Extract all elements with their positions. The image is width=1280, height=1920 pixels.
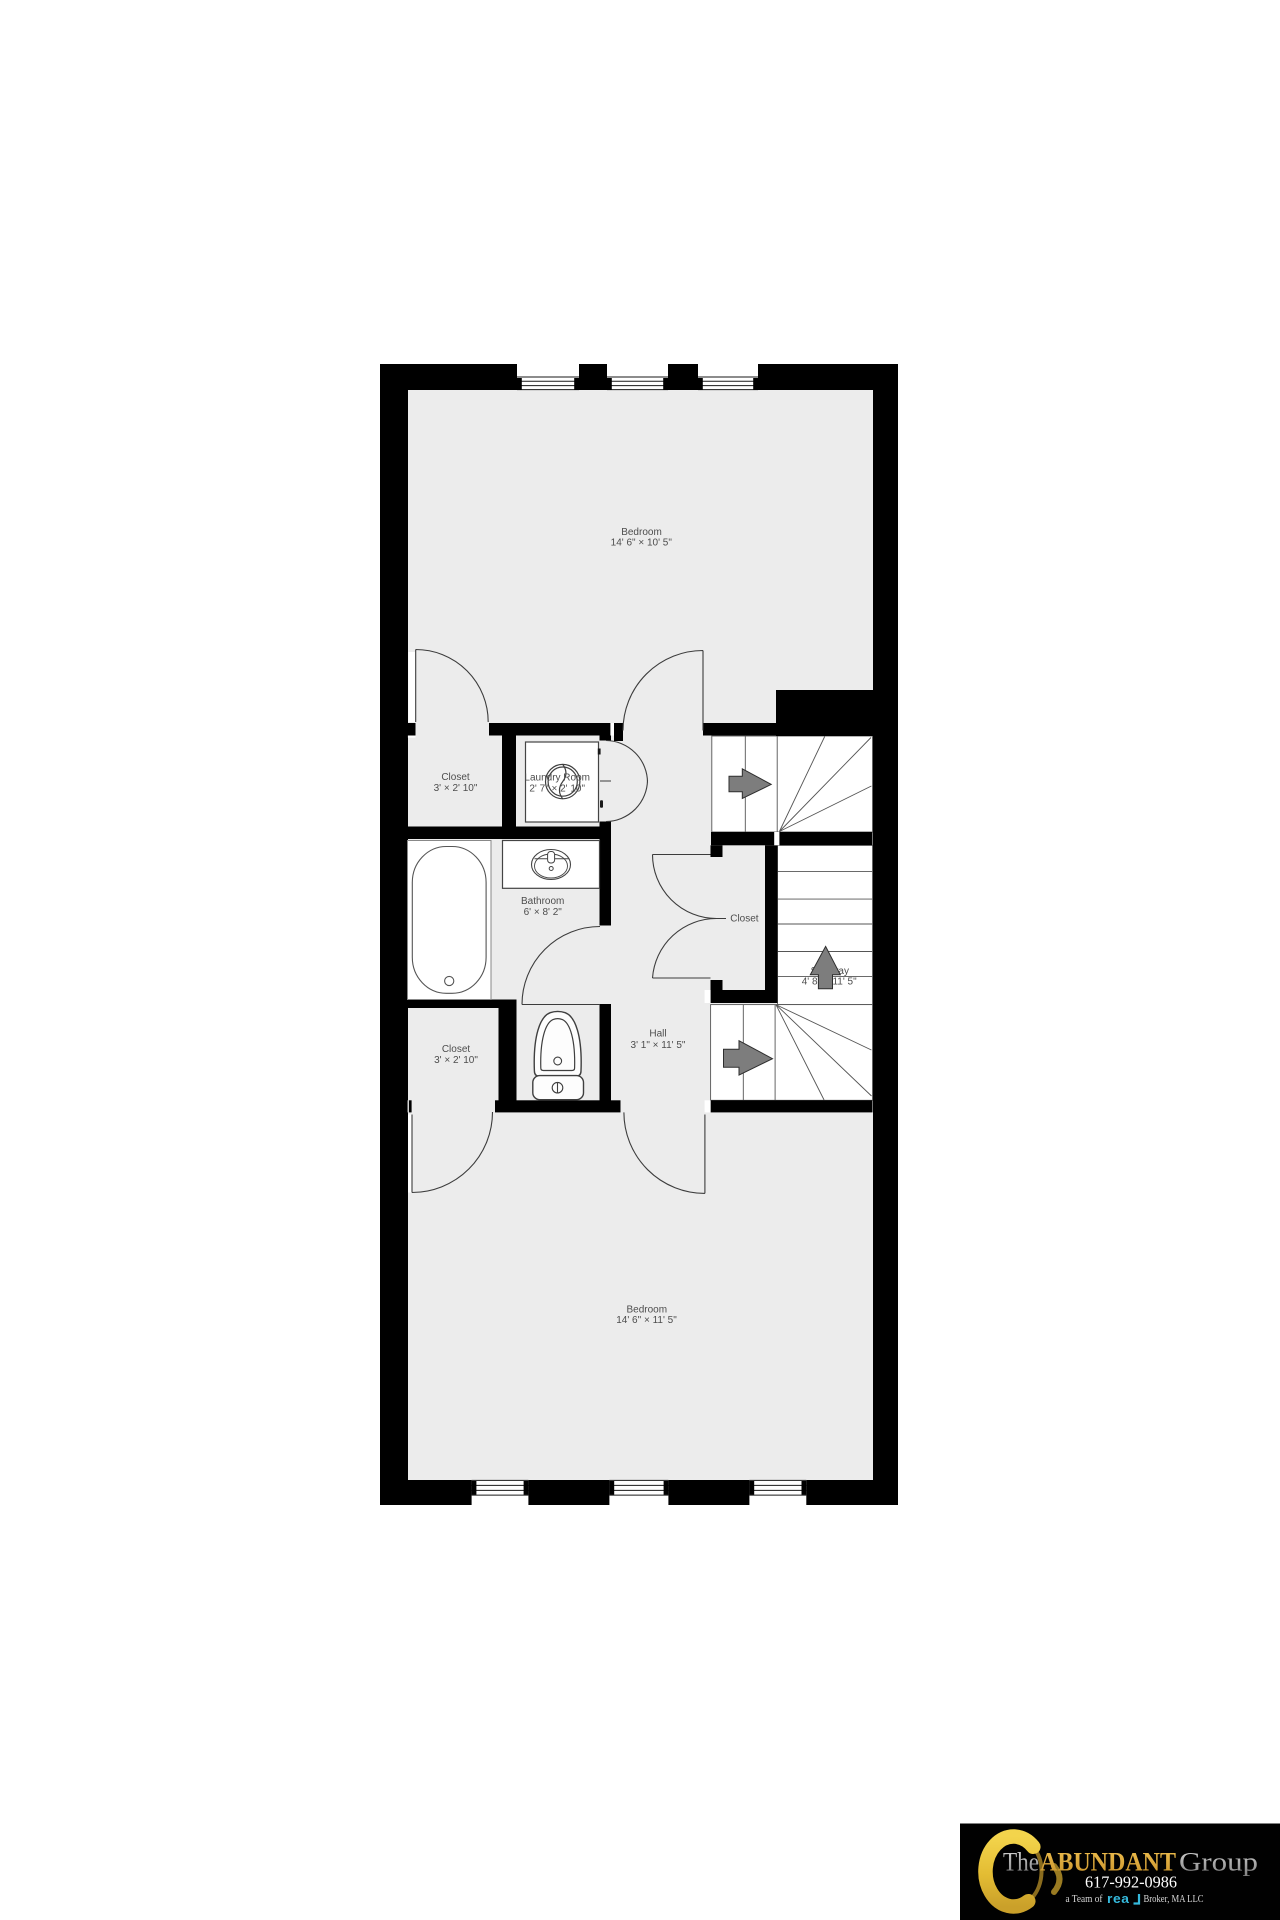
svg-text:Bedroom: Bedroom <box>627 1304 668 1315</box>
svg-text:Broker, MA LLC: Broker, MA LLC <box>1144 1893 1204 1905</box>
svg-text:Closet: Closet <box>730 914 759 925</box>
svg-text:3' × 2' 10": 3' × 2' 10" <box>434 783 478 794</box>
svg-text:Bedroom: Bedroom <box>621 527 662 538</box>
svg-text:Closet: Closet <box>441 772 470 783</box>
svg-text:3' 1" × 11' 5": 3' 1" × 11' 5" <box>631 1040 686 1051</box>
svg-text:rea: rea <box>1107 1892 1130 1906</box>
svg-text:2' 7" × 2' 10": 2' 7" × 2' 10" <box>529 784 585 795</box>
svg-text:617-992-0986: 617-992-0986 <box>1085 1873 1177 1892</box>
svg-text:Laundry Room: Laundry Room <box>524 773 590 784</box>
svg-text:The: The <box>1003 1848 1039 1877</box>
svg-text:a Team of: a Team of <box>1066 1893 1103 1905</box>
svg-text:Bathroom: Bathroom <box>521 896 564 907</box>
svg-text:14' 6" × 10' 5": 14' 6" × 10' 5" <box>611 537 673 548</box>
svg-text:Group: Group <box>1179 1848 1258 1877</box>
svg-text:6' × 8' 2": 6' × 8' 2" <box>524 907 563 918</box>
svg-text:14' 6" × 11' 5": 14' 6" × 11' 5" <box>616 1315 677 1326</box>
svg-text:3' × 2' 10": 3' × 2' 10" <box>434 1055 478 1066</box>
svg-text:Closet: Closet <box>442 1044 471 1055</box>
svg-text:Hall: Hall <box>649 1029 666 1040</box>
